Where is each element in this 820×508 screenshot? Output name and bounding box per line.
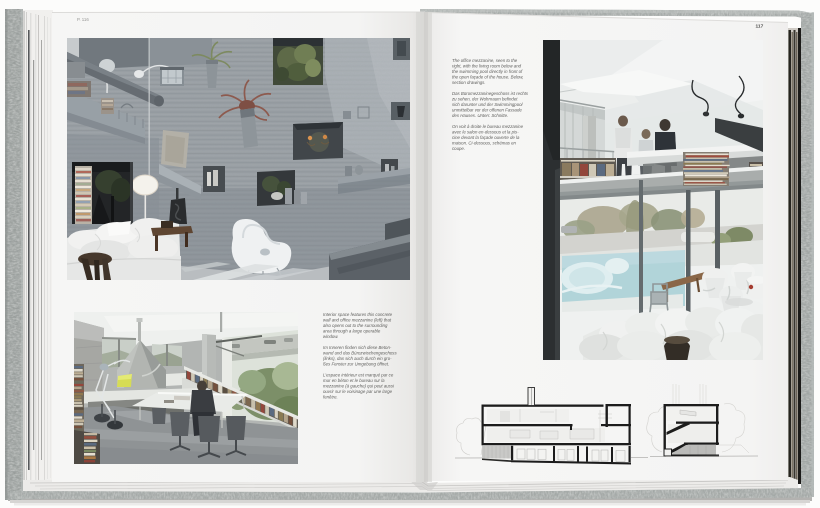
svg-text:The office mezzanine, seen to: The office mezzanine, seen to the bbox=[452, 58, 518, 63]
svg-text:section drawings.: section drawings. bbox=[452, 80, 486, 85]
svg-text:(links), das sich auch durch e: (links), das sich auch durch ein gro- bbox=[323, 356, 392, 361]
svg-text:des Hauses. Unten: Schnitte.: des Hauses. Unten: Schnitte. bbox=[452, 113, 508, 118]
svg-text:the swimming pool directly in: the swimming pool directly in front of bbox=[452, 69, 523, 74]
svg-text:wand und das Bürozwischengesch: wand und das Bürozwischengeschoss bbox=[323, 351, 397, 356]
svg-text:wall and office mezzanine (lef: wall and office mezzanine (left) that bbox=[323, 318, 392, 323]
svg-text:zu sehen, der Wohnraum befinde: zu sehen, der Wohnraum befindet bbox=[451, 97, 518, 102]
svg-text:P. 116: P. 116 bbox=[77, 17, 89, 22]
svg-text:Im Inneren finden sich diese B: Im Inneren finden sich diese Beton- bbox=[323, 345, 392, 350]
svg-text:sich darunter und der Swimming: sich darunter und der Swimmingpool bbox=[452, 102, 524, 107]
svg-text:avec le salon en-dessous et la: avec le salon en-dessous et la pis- bbox=[452, 130, 519, 135]
svg-text:cine devant la façade ouverte: cine devant la façade ouverte de la bbox=[452, 135, 520, 140]
svg-text:unmittelbar vor der offenen Fa: unmittelbar vor der offenen Fassade bbox=[452, 108, 522, 113]
svg-text:mezzanine (à gauche) qui peut: mezzanine (à gauche) qui peut aussi bbox=[323, 384, 395, 389]
svg-text:maison. Ci-dessous, schémas en: maison. Ci-dessous, schémas en bbox=[452, 141, 517, 146]
svg-text:area through a large operable: area through a large operable bbox=[323, 329, 381, 334]
svg-text:also opens out to the surround: also opens out to the surrounding bbox=[323, 323, 388, 328]
svg-text:the open façade of the house.: the open façade of the house. Below, bbox=[452, 75, 524, 80]
svg-text:ouvrir sur le voisinage par un: ouvrir sur le voisinage par une large bbox=[323, 389, 393, 394]
svg-text:fenêtre.: fenêtre. bbox=[323, 395, 338, 400]
svg-text:Das Büromezzaninegeschoss ist: Das Büromezzaninegeschoss ist rechts bbox=[452, 91, 529, 96]
svg-text:L’espace intérieur est marqué: L’espace intérieur est marqué par ce bbox=[323, 373, 394, 378]
svg-text:On voit à droite le bureau mez: On voit à droite le bureau mezzanine bbox=[452, 124, 524, 129]
svg-text:mur en béton et le bureau sur: mur en béton et le bureau sur la bbox=[323, 378, 385, 383]
svg-text:window.: window. bbox=[323, 334, 338, 339]
svg-text:ßes Fenster zur Umgebung öffne: ßes Fenster zur Umgebung öffnet. bbox=[323, 362, 389, 367]
svg-text:Interior space features this c: Interior space features this concrete bbox=[323, 312, 393, 317]
svg-text:117: 117 bbox=[756, 24, 764, 30]
svg-text:coupe.: coupe. bbox=[452, 146, 465, 151]
svg-text:right, with the living room be: right, with the living room below and bbox=[452, 64, 522, 69]
